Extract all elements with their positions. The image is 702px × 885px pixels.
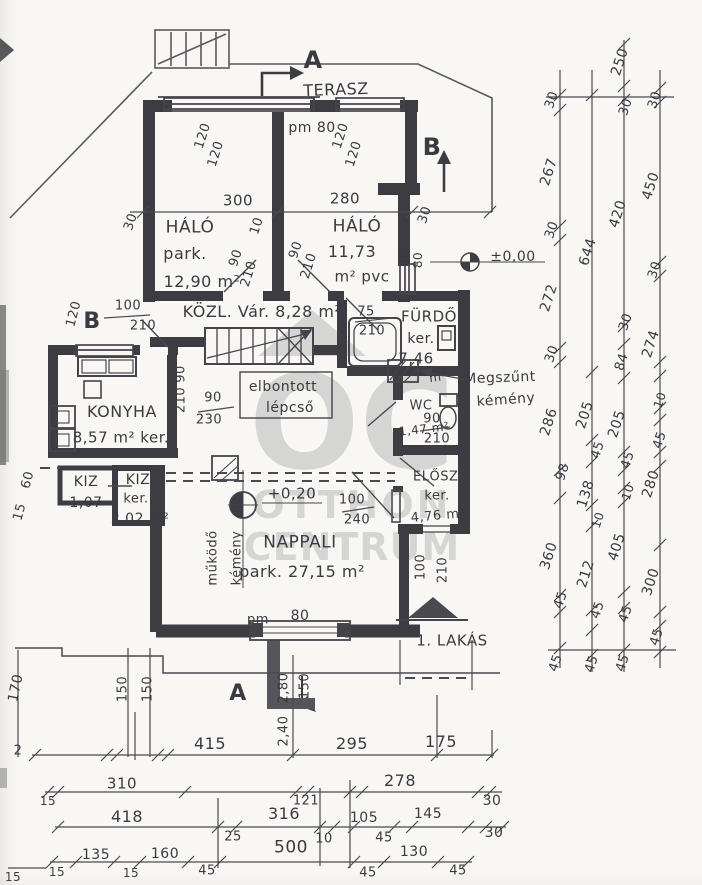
floor-plan-page: OC OTTHON CENTRUM <box>0 0 702 885</box>
watermark: OC OTTHON CENTRUM <box>244 310 461 569</box>
entrance-triangle-icon <box>408 597 458 618</box>
watermark-line1: OTTHON <box>253 483 452 527</box>
main-entry-door <box>250 621 350 640</box>
plan-drawing: OC OTTHON CENTRUM <box>0 0 702 885</box>
scan-artifacts <box>0 38 14 788</box>
